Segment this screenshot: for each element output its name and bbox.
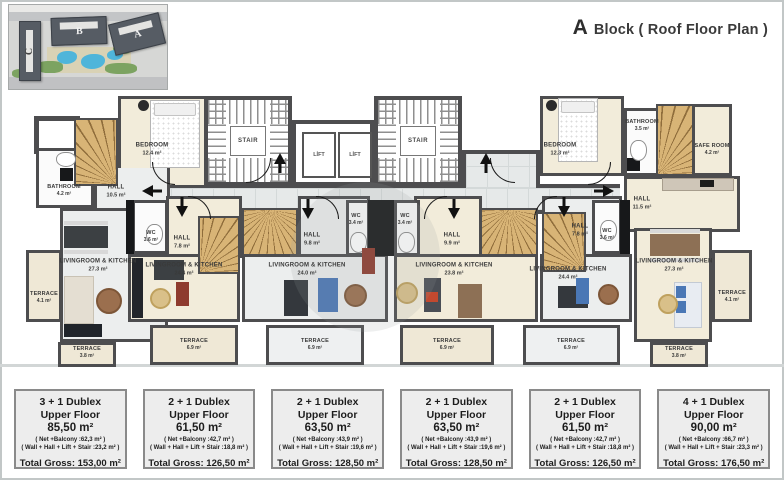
label-u1-hall: HALL10.5 m²: [107, 185, 126, 200]
entry-arrow-down-u5: [556, 196, 572, 218]
toilet-u1: [56, 152, 76, 167]
unit-type: 2 + 1 Dublex: [145, 396, 254, 409]
unit-area: 63,50 m²: [402, 421, 511, 437]
label-u6-safe-room: SAFE ROOM4.2 m²: [694, 143, 729, 157]
stove-u6: [700, 180, 714, 187]
unit-total-gross: Total Gross: 176,50 m²: [659, 458, 768, 469]
rug-u2: [150, 288, 171, 309]
label-u3-terrace: TERRACE6.9 m²: [301, 338, 329, 352]
unit-total-gross: Total Gross: 153,00 m²: [16, 458, 125, 469]
room-u6-terrace-side: [712, 250, 752, 322]
label-u3-living: LIVINGROOM & KITCHEN24.0 m²: [269, 263, 346, 278]
entry-arrow-down-u4: [446, 198, 462, 220]
toilet-u6: [630, 140, 647, 161]
unit-info-box-3: 2 + 1 Dublex Upper Floor 63,50 m² ( Net …: [271, 389, 384, 469]
stair-arrow-up-2: [478, 152, 494, 174]
label-u5-hall: HALL7.8 m²: [572, 224, 589, 239]
chairs: [650, 229, 700, 233]
unit-net: ( Net +Balcony :42,7 m² ): [145, 437, 254, 445]
chairs: [64, 221, 108, 225]
unit-net: ( Net +Balcony :43,9 m² ): [273, 437, 382, 445]
unit-floor: Upper Floor: [16, 409, 125, 422]
site-building-b: B: [51, 16, 108, 46]
entry-arrow-down-u2: [174, 196, 190, 218]
dining-table-u6: [650, 234, 700, 256]
table-u4: [458, 284, 482, 318]
room-u6-safe-room: [692, 104, 732, 176]
stair-core-label: STAIR: [400, 126, 436, 156]
plumbing-wall: [126, 200, 134, 254]
dining-table-u1: [64, 226, 108, 248]
label-u5-wc: WC3.6 m²: [600, 228, 614, 242]
label-u3-wc: WC3.4 m²: [349, 213, 363, 227]
unit-info-box-5: 2 + 1 Dublex Upper Floor 61,50 m² ( Net …: [529, 389, 642, 469]
label-u6-bedroom: BEDROOM12.3 m²: [544, 143, 577, 158]
duplex-stair-u5: [542, 212, 586, 272]
unit-info-box-6: 4 + 1 Dublex Upper Floor 90,00 m² ( Net …: [657, 389, 770, 469]
block-letter: A: [573, 16, 588, 40]
room-u1-terrace-side: [26, 250, 62, 322]
label-u6-terrace-side: TERRACE4.1 m²: [718, 290, 746, 304]
label-u6-bathroom: BATHROOM3.5 m²: [625, 119, 659, 133]
stair-steps: [208, 100, 226, 182]
red-cabinet-u2: [176, 282, 189, 306]
unit-walls: ( Wall + Hall + Lift + Stair :18,8 m² ): [531, 445, 640, 453]
plumbing-wall: [620, 200, 630, 254]
stair-core-2: STAIR: [374, 96, 462, 186]
site-road-top: [9, 5, 167, 12]
unit-net: ( Net +Balcony :62,3 m² ): [16, 437, 125, 445]
lift-2: LİFT: [338, 132, 372, 178]
unit-info-box-4: 2 + 1 Dublex Upper Floor 63,50 m² ( Net …: [400, 389, 513, 469]
label-u1-bedroom: BEDROOM12.4 m²: [136, 143, 169, 158]
label-u2-living: LIVINGROOM & KITCHEN24.4 m²: [146, 263, 223, 278]
block-title-rest: Block ( Roof Floor Plan ): [594, 22, 768, 38]
label-u1-terrace-bottom: TERRACE3.8 m²: [73, 346, 101, 360]
unit-total-gross: Total Gross: 128,50 m²: [402, 458, 511, 469]
unit-type: 2 + 1 Dublex: [273, 396, 382, 409]
unit-type: 3 + 1 Dublex: [16, 396, 125, 409]
stair-core-label: STAIR: [230, 126, 266, 156]
unit-type: 2 + 1 Dublex: [402, 396, 511, 409]
chairs: [64, 250, 108, 254]
unit-area: 90,00 m²: [659, 421, 768, 437]
site-plan-thumbnail: C B A: [8, 4, 168, 90]
unit-floor: Upper Floor: [273, 409, 382, 422]
unit-total-gross: Total Gross: 128,50 m²: [273, 458, 382, 469]
page-title: A Block ( Roof Floor Plan ): [573, 16, 768, 40]
pillow-u1: [154, 103, 196, 116]
unit-floor: Upper Floor: [531, 409, 640, 422]
label-u4-wc: WC3.4 m²: [398, 213, 412, 227]
label-u5-living: LIVINGROOM & KITCHEN24.4 m²: [530, 267, 607, 282]
rug-u1: [96, 288, 122, 314]
unit-walls: ( Wall + Hall + Lift + Stair :23,2 m² ): [16, 445, 125, 453]
unit-info-box-2: 2 + 1 Dublex Upper Floor 61,50 m² ( Net …: [143, 389, 256, 469]
lift-shaft-block: LİFT LİFT: [292, 120, 374, 186]
wall-segment: [34, 116, 39, 154]
label-u3-hall: HALL9.8 m²: [304, 233, 321, 248]
site-green: [105, 63, 137, 74]
duplex-stair-u6: [656, 104, 694, 176]
unit-info-box-1: 3 + 1 Dublex Upper Floor 85,50 m² ( Net …: [14, 389, 127, 469]
unit-net: ( Net +Balcony :42,7 m² ): [531, 437, 640, 445]
unit-walls: ( Wall + Hall + Lift + Stair :18,8 m² ): [145, 445, 254, 453]
lift-1: LİFT: [302, 132, 336, 178]
duplex-stair-u4: [480, 208, 538, 256]
site-building-c: C: [19, 21, 41, 81]
label-u2-terrace: TERRACE6.9 m²: [180, 338, 208, 352]
label-u1-terrace-side: TERRACE4.1 m²: [30, 291, 58, 305]
floor-plan-page: A Block ( Roof Floor Plan ) C B A: [0, 0, 784, 480]
label-u6-hall: HALL11.5 m²: [633, 197, 652, 212]
label-u6-living: LIVINGROOM & KITCHEN27.3 m²: [636, 259, 713, 274]
label-u1-living: LIVINGROOM & KITCHEN27.3 m²: [60, 259, 137, 274]
unit-type: 4 + 1 Dublex: [659, 396, 768, 409]
pillow-u6: [561, 101, 595, 113]
kitchen-counter-u6: [662, 178, 734, 191]
unit-area: 61,50 m²: [145, 421, 254, 437]
blue-cushion-u6: [676, 286, 686, 298]
entry-arrow-left-u1: [141, 183, 163, 199]
stair-arrow-up-1: [272, 152, 288, 174]
unit-area: 85,50 m²: [16, 421, 125, 437]
entry-arrow-down-u3: [300, 198, 316, 220]
label-u4-hall: HALL9.9 m²: [444, 233, 461, 248]
unit-area: 61,50 m²: [531, 421, 640, 437]
unit-net: ( Net +Balcony :66,7 m² ): [659, 437, 768, 445]
unit-walls: ( Wall + Hall + Lift + Stair :19,6 m² ): [273, 445, 382, 453]
unit-total-gross: Total Gross: 126,50 m²: [531, 458, 640, 469]
sofa-u1: [64, 276, 94, 324]
unit-net: ( Net +Balcony :43,9 m² ): [402, 437, 511, 445]
label-u1-bathroom: BATHROOM4.2 m²: [47, 184, 81, 198]
label-u5-terrace: TERRACE6.9 m²: [557, 338, 585, 352]
label-u2-hall: HALL7.8 m²: [174, 236, 191, 251]
nightstand-u6: [546, 100, 557, 111]
unit-floor: Upper Floor: [145, 409, 254, 422]
kitchen-counter-u1: [64, 324, 102, 337]
rug-u5: [598, 284, 619, 305]
entry-arrow-right-u6: [593, 183, 615, 199]
unit-type: 2 + 1 Dublex: [531, 396, 640, 409]
duplex-stair-u1: [74, 118, 118, 186]
label-u4-terrace: TERRACE6.9 m²: [433, 338, 461, 352]
label-u6-terrace-bottom: TERRACE3.8 m²: [665, 346, 693, 360]
label-u2-wc: WC3.6 m²: [144, 230, 158, 244]
unit-info-row: 3 + 1 Dublex Upper Floor 85,50 m² ( Net …: [14, 389, 770, 469]
label-u4-living: LIVINGROOM & KITCHEN23.8 m²: [416, 263, 493, 278]
bathroom-cabinet: [60, 168, 73, 181]
blue-cabinet-u5: [576, 278, 589, 304]
unit-total-gross: Total Gross: 126,50 m²: [145, 458, 254, 469]
unit-walls: ( Wall + Hall + Lift + Stair :23,3 m² ): [659, 445, 768, 453]
stair-steps: [378, 100, 396, 182]
door-arc: [588, 162, 611, 185]
unit-floor: Upper Floor: [659, 409, 768, 422]
unit-floor: Upper Floor: [402, 409, 511, 422]
nightstand-u1: [138, 100, 149, 111]
rug-u6: [658, 294, 678, 314]
unit-area: 63,50 m²: [273, 421, 382, 437]
unit-walls: ( Wall + Hall + Lift + Stair :19,6 m² ): [402, 445, 511, 453]
stair-steps: [440, 100, 458, 182]
